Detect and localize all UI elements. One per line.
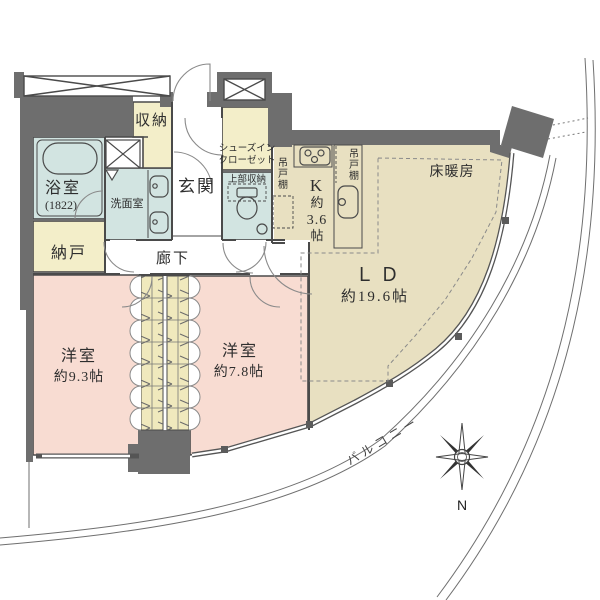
compass-north-label: N: [457, 497, 467, 513]
shoes-closet-line1: シューズイン: [219, 142, 276, 154]
bedroom-a-label: 洋室: [61, 347, 97, 365]
kitchen-label-yaku: 約: [310, 195, 323, 210]
floorplan-drawing: 浴室 (1822) 収納 洗面室 玄関 シューズイン クローゼット 上部収納 吊…: [0, 0, 600, 600]
duct-box-right: [224, 79, 265, 100]
entrance-door: [173, 64, 210, 101]
bedroom-b-size: 約7.8帖: [214, 364, 265, 380]
kitchen-label-k: K: [310, 176, 324, 195]
bathroom-dim: (1822): [45, 198, 77, 212]
entrance-label: 玄関: [178, 177, 216, 196]
floor-heating-label: 床暖房: [430, 164, 475, 180]
balcony-label: バルコニー: [344, 414, 422, 468]
bedroom-b-label: 洋室: [222, 342, 258, 360]
duct-boxes: [24, 76, 265, 100]
cupboard-left-label: 吊戸棚: [276, 157, 288, 190]
bedroom-a-floor: [33, 275, 139, 455]
balcony-partition-dotted: [548, 118, 588, 139]
bedroom-a-size: 約9.3帖: [54, 369, 105, 385]
shoes-closet-line2: クローゼット: [218, 154, 275, 166]
kitchen-label-num: 3.6: [307, 213, 328, 228]
ld-label: ＬＤ: [355, 265, 405, 286]
center-closet: [130, 276, 200, 430]
compass: [436, 423, 488, 490]
corridor-floor: [105, 240, 310, 274]
corridor-label: 廊下: [156, 250, 190, 267]
duct-box-left: [24, 76, 170, 96]
nando-label: 納戸: [51, 244, 87, 262]
ld-size: 約19.6帖: [341, 288, 409, 305]
entrance-floor: [172, 103, 222, 240]
upper-storage-label: 上部収納: [228, 173, 266, 185]
washroom-label: 洗面室: [111, 196, 144, 210]
storage-label: 収納: [135, 112, 169, 129]
bathroom-label: 浴室: [45, 179, 81, 197]
cupboard-right-label: 吊戸棚: [347, 148, 359, 181]
kitchen-label-jo: 帖: [310, 228, 323, 243]
floorplan-page: 浴室 (1822) 収納 洗面室 玄関 シューズイン クローゼット 上部収納 吊…: [0, 0, 600, 600]
